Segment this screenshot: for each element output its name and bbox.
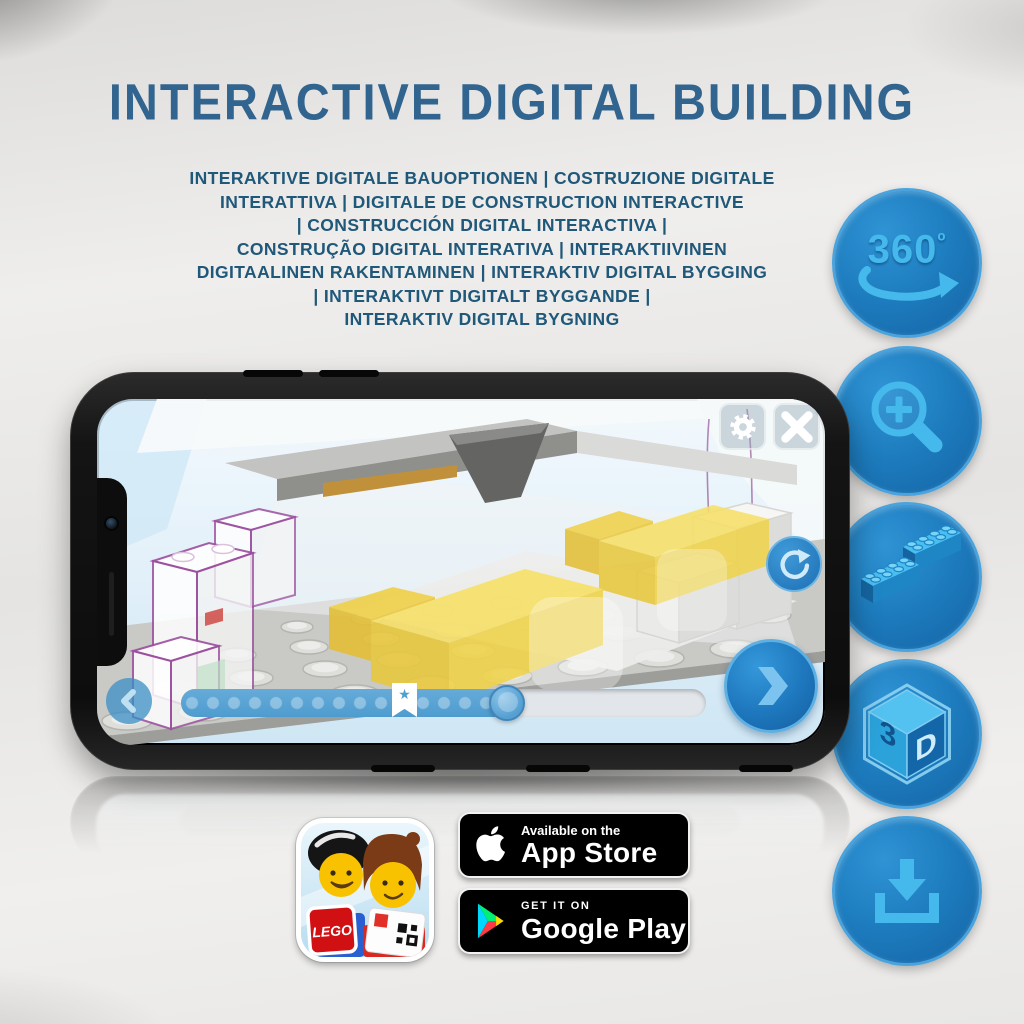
google-play-badge[interactable]: GET IT ON Google Play [458, 888, 690, 954]
chevron-left-icon [114, 686, 144, 716]
feature-3d-icon: 3 D [832, 659, 982, 809]
app-store-tagline: Available on the [521, 823, 657, 838]
app-screen[interactable]: ★ [97, 399, 825, 745]
app-store-badge[interactable]: Available on the App Store [458, 812, 690, 878]
subtitle-line: DIGITAALINEN RAKENTAMINEN | INTERAKTIV D… [112, 261, 852, 285]
apple-logo-icon [476, 825, 508, 865]
360-label: 360º [868, 224, 947, 266]
volume-button [319, 370, 379, 377]
chevron-right-icon [747, 662, 795, 710]
lego-bricks-icon [853, 523, 961, 631]
side-button [371, 765, 435, 772]
cube-3d-icon: 3 D [852, 679, 962, 789]
feature-zoom-icon [832, 346, 982, 496]
previous-step-button[interactable] [106, 678, 152, 724]
gear-icon [723, 407, 763, 447]
google-play-tagline: GET IT ON [521, 899, 686, 914]
close-icon [779, 409, 815, 445]
google-play-name: Google Play [521, 914, 686, 944]
qr-code-card [365, 908, 426, 957]
download-icon [859, 843, 955, 939]
build-progress-slider[interactable]: ★ [181, 689, 706, 717]
subtitle-line: CONSTRUÇÃO DIGITAL INTERATIVA | INTERAKT… [112, 238, 852, 262]
settings-button[interactable] [719, 403, 766, 450]
subtitle-line: INTERAKTIVE DIGITALE BAUOPTIONEN | COSTR… [112, 167, 852, 191]
earpiece-speaker [109, 572, 114, 636]
slider-thumb[interactable] [489, 685, 525, 721]
lego-app-artwork: LEGO [301, 823, 429, 957]
phone-notch [97, 478, 127, 666]
app-store-name: App Store [521, 838, 657, 868]
lego-app-icon[interactable]: LEGO [296, 818, 434, 962]
feature-360-icon: 360º [832, 188, 982, 338]
page-title: INTERACTIVE DIGITAL BUILDING [0, 72, 1024, 131]
volume-button [243, 370, 303, 377]
side-button [739, 765, 793, 772]
smartphone: ★ [70, 372, 850, 770]
subtitle-line: | CONSTRUCCIÓN DIGITAL INTERACTIVA | [112, 214, 852, 238]
circular-arrow-icon [855, 266, 959, 302]
lego-logo: LEGO [307, 905, 356, 954]
google-play-logo-icon [476, 902, 508, 940]
side-button [526, 765, 590, 772]
slider-progress-fill [181, 689, 512, 717]
subtitle-line: | INTERAKTIVT DIGITALT BYGGANDE | [112, 285, 852, 309]
rotate-view-button[interactable] [766, 536, 822, 592]
marketing-graphic: INTERACTIVE DIGITAL BUILDING INTERAKTIVE… [0, 0, 1024, 1024]
rotate-icon [772, 542, 816, 586]
subtitle-line: INTERAKTIV DIGITAL BYGNING [112, 308, 852, 332]
front-camera [106, 518, 117, 529]
feature-bricks-icon [832, 502, 982, 652]
close-button[interactable] [773, 403, 820, 450]
subtitle-line: INTERATTIVA | DIGITALE DE CONSTRUCTION I… [112, 191, 852, 215]
next-step-button[interactable] [724, 639, 818, 733]
lego-logo-text: LEGO [312, 922, 353, 941]
subtitle-translations: INTERAKTIVE DIGITALE BAUOPTIONEN | COSTR… [112, 167, 852, 332]
magnifier-plus-icon [859, 373, 955, 469]
feature-download-icon [832, 816, 982, 966]
